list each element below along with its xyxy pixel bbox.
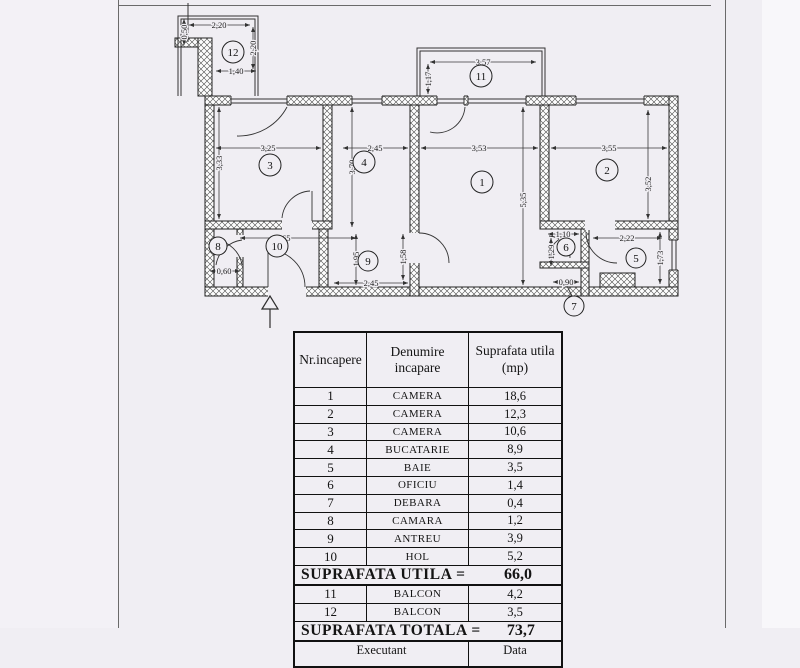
table-row: 9ANTREU3,9 [295, 530, 561, 548]
cell-name: BALCON [367, 586, 469, 603]
total-row: SUPRAFATA TOTALA = 73,7 [295, 622, 561, 642]
dimension-label: 2,20 [248, 41, 258, 56]
dimension-label: 3,33 [214, 156, 224, 171]
cell-nr: 6 [295, 477, 367, 494]
cell-area: 1,2 [469, 513, 561, 530]
room-marker-8: 8 [209, 237, 227, 255]
subtotal-value: 66,0 [475, 566, 561, 584]
cell-area: 18,6 [469, 388, 561, 405]
cell-name: CAMARA [367, 513, 469, 530]
cell-area: 12,3 [469, 406, 561, 423]
room-number: 2 [604, 165, 610, 177]
dimension-label: 1,29 [546, 245, 556, 260]
cell-nr: 4 [295, 441, 367, 458]
header-area: Suprafata utila (mp) [469, 333, 561, 387]
dimension-label: 3,55 [602, 143, 617, 153]
dimension-label: 0,60 [217, 266, 232, 276]
table-row: 2CAMERA12,3 [295, 406, 561, 424]
room-marker-3: 3 [259, 154, 281, 176]
header-nr: Nr.incapere [295, 333, 367, 387]
table-row: 6OFICIU1,4 [295, 477, 561, 495]
total-value: 73,7 [481, 622, 561, 640]
room-marker-4: 4 [353, 151, 375, 173]
table-row: 5BAIE3,5 [295, 459, 561, 477]
window-glyphs [231, 96, 678, 270]
table-rows-main: 1CAMERA18,62CAMERA12,33CAMERA10,64BUCATA… [295, 388, 561, 566]
room-number: 12 [228, 47, 239, 59]
cell-nr: 2 [295, 406, 367, 423]
cell-name: HOL [367, 548, 469, 565]
dimension-label: 2,20 [212, 20, 227, 30]
cell-nr: 10 [295, 548, 367, 565]
cell-area: 3,5 [469, 604, 561, 621]
room-number: 9 [365, 256, 371, 268]
header-name: Denumire incapare [367, 333, 469, 387]
table-rows-balcony: 11BALCON4,212BALCON3,5 [295, 586, 561, 622]
room-marker-2: 2 [596, 159, 618, 181]
cell-name: CAMERA [367, 406, 469, 423]
room-marker-9: 9 [358, 251, 378, 271]
room-number: 4 [361, 157, 367, 169]
room-marker-1: 1 [471, 171, 493, 193]
cell-nr: 5 [295, 459, 367, 476]
dimension-label: 1,17 [423, 72, 433, 87]
dimension-lines [184, 19, 667, 285]
cell-nr: 12 [295, 604, 367, 621]
room-marker-11: 11 [470, 65, 492, 87]
room-marker-10: 10 [266, 235, 288, 257]
area-table: Nr.incapere Denumire incapare Suprafata … [293, 331, 563, 668]
dimension-label: 2,45 [364, 278, 379, 288]
cell-nr: 11 [295, 586, 367, 603]
dimension-label: 1,10 [556, 229, 571, 239]
dim-labels: 2,201,403,573,252,453,533,552,652,450,60… [179, 20, 665, 288]
dimension-label: 3,53 [472, 143, 487, 153]
dimension-label: 3,52 [643, 177, 653, 192]
cell-name: BALCON [367, 604, 469, 621]
cell-name: CAMERA [367, 388, 469, 405]
room-number: 11 [476, 71, 487, 83]
table-row: 12BALCON3,5 [295, 604, 561, 622]
subtotal-label: SUPRAFATA UTILA = [295, 566, 475, 584]
dimension-label: 5,35 [518, 193, 528, 208]
table-row: 8CAMARA1,2 [295, 513, 561, 531]
table-row: 10HOL5,2 [295, 548, 561, 566]
cell-nr: 7 [295, 495, 367, 512]
table-row: 4BUCATARIE8,9 [295, 441, 561, 459]
cell-area: 3,5 [469, 459, 561, 476]
cell-area: 5,2 [469, 548, 561, 565]
dimension-label: 1,40 [229, 66, 244, 76]
table-row: 11BALCON4,2 [295, 586, 561, 604]
dimension-label: 0,50 [179, 25, 189, 40]
room-number: 6 [563, 242, 569, 254]
table-row: 3CAMERA10,6 [295, 424, 561, 442]
cell-name: ANTREU [367, 530, 469, 547]
room-marker-7: 7 [564, 296, 584, 316]
footer-executant: Executant [295, 642, 469, 666]
cell-area: 10,6 [469, 424, 561, 441]
footer-data: Data [469, 642, 561, 666]
dimension-label: 3,25 [261, 143, 276, 153]
cell-name: BUCATARIE [367, 441, 469, 458]
dimension-label: 1,58 [398, 250, 408, 265]
room-number: 5 [633, 253, 639, 265]
cell-name: BAIE [367, 459, 469, 476]
table-row: 1CAMERA18,6 [295, 388, 561, 406]
room-marker-5: 5 [626, 248, 646, 268]
cell-nr: 1 [295, 388, 367, 405]
table-header: Nr.incapere Denumire incapare Suprafata … [295, 333, 561, 388]
header-area-line2: (mp) [502, 360, 528, 377]
room-marker-6: 6 [557, 238, 575, 256]
room-number: 3 [267, 160, 273, 172]
table-footer: Executant Data [295, 642, 561, 666]
room-number: 7 [571, 301, 577, 313]
subtotal-row: SUPRAFATA UTILA = 66,0 [295, 566, 561, 586]
header-area-line1: Suprafata utila [475, 343, 554, 360]
cell-nr: 9 [295, 530, 367, 547]
cell-area: 1,4 [469, 477, 561, 494]
room-number: 1 [479, 177, 485, 189]
entrance-arrow [262, 296, 278, 328]
floor-plan: 2,201,403,573,252,453,533,552,652,450,60… [0, 0, 800, 330]
dimension-label: 1,73 [655, 251, 665, 266]
dimension-label: 2,45 [368, 143, 383, 153]
cell-area: 3,9 [469, 530, 561, 547]
cell-area: 0,4 [469, 495, 561, 512]
cell-name: CAMERA [367, 424, 469, 441]
cell-area: 4,2 [469, 586, 561, 603]
dimension-label: 0,90 [559, 277, 574, 287]
cell-name: OFICIU [367, 477, 469, 494]
room-marker-12: 12 [222, 41, 244, 63]
cell-name: DEBARA [367, 495, 469, 512]
dimension-label: 2,22 [620, 233, 635, 243]
wall-openings [231, 95, 679, 297]
cell-nr: 3 [295, 424, 367, 441]
room-number: 10 [272, 241, 284, 253]
total-label: SUPRAFATA TOTALA = [295, 622, 481, 640]
room-number: 8 [215, 241, 221, 253]
cell-area: 8,9 [469, 441, 561, 458]
table-row: 7DEBARA0,4 [295, 495, 561, 513]
cell-nr: 8 [295, 513, 367, 530]
